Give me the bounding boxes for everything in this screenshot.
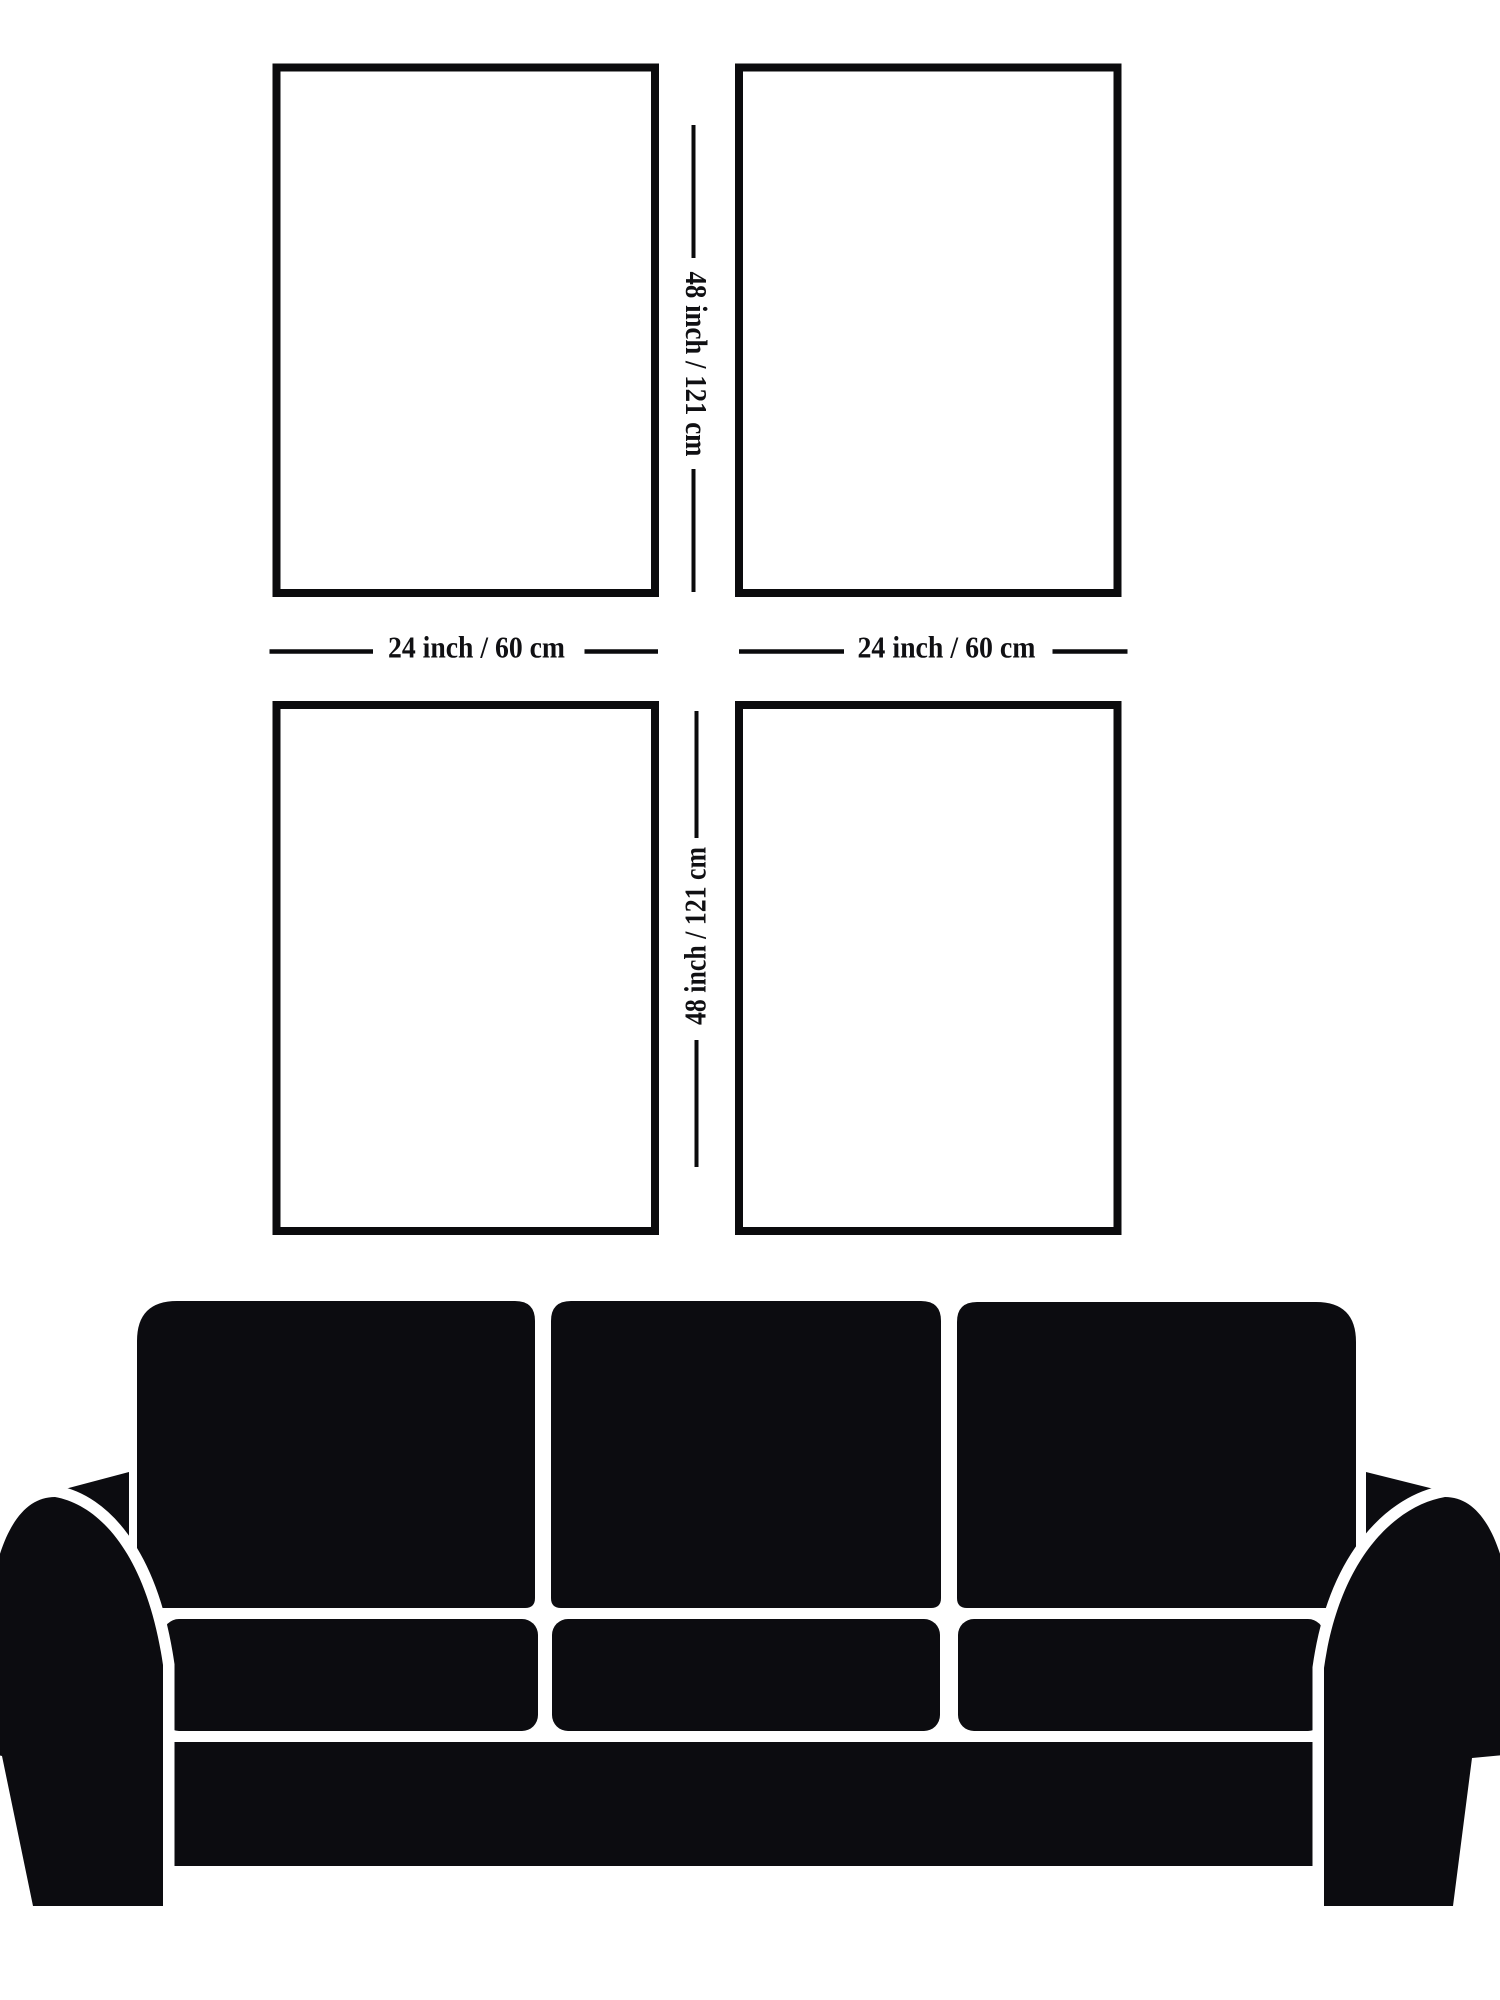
svg-text:48 inch / 121 cm: 48 inch / 121 cm [679, 272, 714, 457]
svg-text:24 inch / 60 cm: 24 inch / 60 cm [388, 630, 565, 665]
svg-text:24 inch / 60 cm: 24 inch / 60 cm [858, 630, 1036, 665]
svg-text:48 inch / 121 cm: 48 inch / 121 cm [678, 847, 713, 1025]
